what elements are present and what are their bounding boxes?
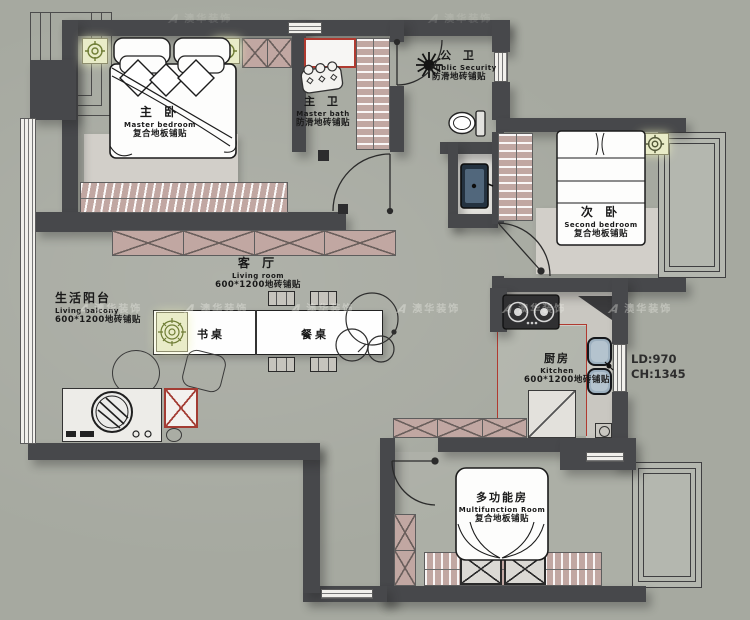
ceiling-light xyxy=(641,133,669,155)
window-top-wall xyxy=(288,22,322,34)
label-second-bedroom: 次 卧 Second bedroom 复合地板铺贴 xyxy=(558,206,644,240)
cabinet-section xyxy=(395,551,415,586)
wall-living-south xyxy=(28,443,320,460)
watermark-logo-icon: A xyxy=(427,12,443,26)
wall-multifunction-north xyxy=(438,438,562,452)
room-name-cn: 厨房 xyxy=(524,353,590,366)
watermark-text: 澳华装饰 xyxy=(184,14,232,25)
floor-drain xyxy=(595,423,612,438)
wall-bottom-main xyxy=(380,586,646,602)
label-kitchen: 厨房 Kitchen 600*1200地砖铺贴 xyxy=(524,353,590,385)
cabinet-section xyxy=(113,231,184,255)
watermark: A澳华装饰 xyxy=(430,10,492,25)
watermark: A澳华装饰 xyxy=(292,300,354,315)
cabinet-section xyxy=(184,231,255,255)
bay-window-pane xyxy=(669,143,715,267)
cabinet-section xyxy=(255,231,326,255)
watermark-logo-icon: A xyxy=(607,302,623,316)
room-name-cn: 主 卫 xyxy=(291,96,355,109)
label-public-bath: 公 卫 Public Security 防滑地砖铺贴 xyxy=(430,50,488,82)
watermark-text: 澳华装饰 xyxy=(444,14,492,25)
light-symbol-icon xyxy=(216,40,238,62)
room-name-cn: 主 卧 xyxy=(110,106,210,120)
label-dining-table: 餐桌 xyxy=(290,326,340,342)
room-name-en: Public Security xyxy=(430,64,488,72)
table-divider xyxy=(255,310,257,355)
dimension-ch: CH:1345 xyxy=(631,367,686,382)
shower-screen-masterbath xyxy=(356,38,390,150)
light-symbol-icon xyxy=(645,134,665,154)
wardrobe-door-left xyxy=(460,553,502,585)
window-bottom-left xyxy=(321,589,373,599)
room-floor-note: 复合地板铺贴 xyxy=(110,130,210,140)
label-master-bedroom: 主 卧 Master bedroom 复合地板铺贴 xyxy=(110,106,210,140)
room-floor-note: 600*1200地砖铺贴 xyxy=(524,376,590,386)
room-floor-note: 600*1200地砖铺贴 xyxy=(55,316,155,326)
watermark: A澳华装饰 xyxy=(80,300,142,315)
wall-niche-south xyxy=(448,214,498,228)
utility-box xyxy=(164,388,198,428)
watermark-text: 澳华装饰 xyxy=(412,304,460,315)
room-name-cn: 多功能房 xyxy=(457,492,547,505)
watermark: A澳华装饰 xyxy=(398,300,460,315)
room-name-en: Multifunction Room xyxy=(457,506,547,514)
watermark-text: 澳华装饰 xyxy=(306,304,354,315)
watermark-logo-icon: A xyxy=(77,302,93,316)
room-floor-note: 防滑地砖铺贴 xyxy=(291,119,355,129)
ceiling-light xyxy=(214,38,240,64)
watermark-text: 澳华装饰 xyxy=(94,304,142,315)
wall-bedroom-south xyxy=(34,212,346,232)
watermark-logo-icon: A xyxy=(501,302,517,316)
bay-window-pane xyxy=(643,473,691,577)
wall-corner-topleft xyxy=(30,60,76,120)
light-symbol-icon xyxy=(84,40,106,62)
wall-publicbath-left-top xyxy=(390,20,404,42)
cabinet-section xyxy=(243,39,268,67)
watermark-text: 澳华装饰 xyxy=(200,304,248,315)
window-balcony-left xyxy=(20,118,36,444)
watermark-logo-icon: A xyxy=(395,302,411,316)
washing-machine xyxy=(62,388,162,442)
dining-chair[interactable] xyxy=(268,291,295,306)
room-floor-note: 600*1200地砖铺贴 xyxy=(213,281,303,291)
cabinet-section xyxy=(394,419,438,437)
floor-plan-canvas: { "watermark": { "logo_letter": "A", "br… xyxy=(0,0,750,620)
bathtub xyxy=(304,38,356,68)
watermark: A澳华装饰 xyxy=(504,300,566,315)
room-floor-note: 复合地板铺贴 xyxy=(558,230,644,240)
wardrobe-door-right xyxy=(504,553,546,585)
cabinet-section xyxy=(325,231,395,255)
bay-window-multifunction xyxy=(632,462,702,588)
cabinet-section xyxy=(438,419,482,437)
room-name-en: Second bedroom xyxy=(558,221,644,229)
room-name-en: Kitchen xyxy=(524,367,590,375)
dining-chair[interactable] xyxy=(310,357,337,372)
vent-kitchen-south xyxy=(586,452,624,462)
cabinet-section xyxy=(483,419,526,437)
dimension-note: LD:970 CH:1345 xyxy=(631,352,686,382)
wall-publicbath-right-bottom xyxy=(492,82,510,120)
door-post-masterbath xyxy=(318,150,329,161)
wall-publicbath-right-top xyxy=(492,20,510,52)
label-multifunction-room: 多功能房 Multifunction Room 复合地板铺贴 xyxy=(457,492,547,524)
light-symbol-icon xyxy=(157,317,187,347)
watermark-logo-icon: A xyxy=(167,12,183,26)
label-desk: 书桌 xyxy=(186,326,236,342)
wall-publicbath-left-bottom xyxy=(390,86,404,152)
watermark-text: 澳华装饰 xyxy=(518,304,566,315)
watermark: A澳华装饰 xyxy=(186,300,248,315)
washbasin-niche-floor xyxy=(456,152,494,218)
master-bedroom-wardrobe xyxy=(80,182,288,213)
window-kitchen xyxy=(613,344,627,392)
cabinet-section xyxy=(395,515,415,551)
tv-cabinet xyxy=(112,230,396,256)
ceiling-light xyxy=(82,38,108,64)
wall-secondbed-south xyxy=(492,278,686,292)
room-floor-note: 复合地板铺贴 xyxy=(457,515,547,525)
room-name-cn: 客 厅 xyxy=(213,257,303,271)
entry-shoe-cabinet xyxy=(393,418,527,438)
wall-secondbed-north xyxy=(496,118,686,132)
watermark: A澳华装饰 xyxy=(610,300,672,315)
room-name-en: Master bath xyxy=(291,110,355,118)
utility-drain xyxy=(166,428,182,442)
room-floor-note: 防滑地砖铺贴 xyxy=(430,73,488,83)
cabinet-section xyxy=(268,39,292,67)
watermark-text: 澳华装饰 xyxy=(624,304,672,315)
watermark-logo-icon: A xyxy=(183,302,199,316)
label-living-room: 客 厅 Living room 600*1200地砖铺贴 xyxy=(213,257,303,291)
master-bedroom-cabinet xyxy=(242,38,292,68)
second-bedroom-wardrobe xyxy=(498,133,533,221)
fridge-cabinet xyxy=(528,390,576,438)
ceiling-light-living xyxy=(156,312,188,352)
dining-chair[interactable] xyxy=(268,357,295,372)
wall-living-south-vertical xyxy=(303,443,320,593)
label-master-bath: 主 卫 Master bath 防滑地砖铺贴 xyxy=(291,96,355,128)
door-post-hall xyxy=(338,204,348,214)
watermark-logo-icon: A xyxy=(289,302,305,316)
room-name-cn: 次 卧 xyxy=(558,206,644,220)
multifunction-side-wardrobe xyxy=(394,514,416,586)
room-name-en: Master bedroom xyxy=(110,121,210,129)
room-name-cn: 公 卫 xyxy=(430,50,488,63)
watermark: A澳华装饰 xyxy=(170,10,232,25)
dimension-ld: LD:970 xyxy=(631,352,686,367)
wall-multifunction-left xyxy=(380,438,395,602)
room-name-en: Living room xyxy=(213,272,303,280)
